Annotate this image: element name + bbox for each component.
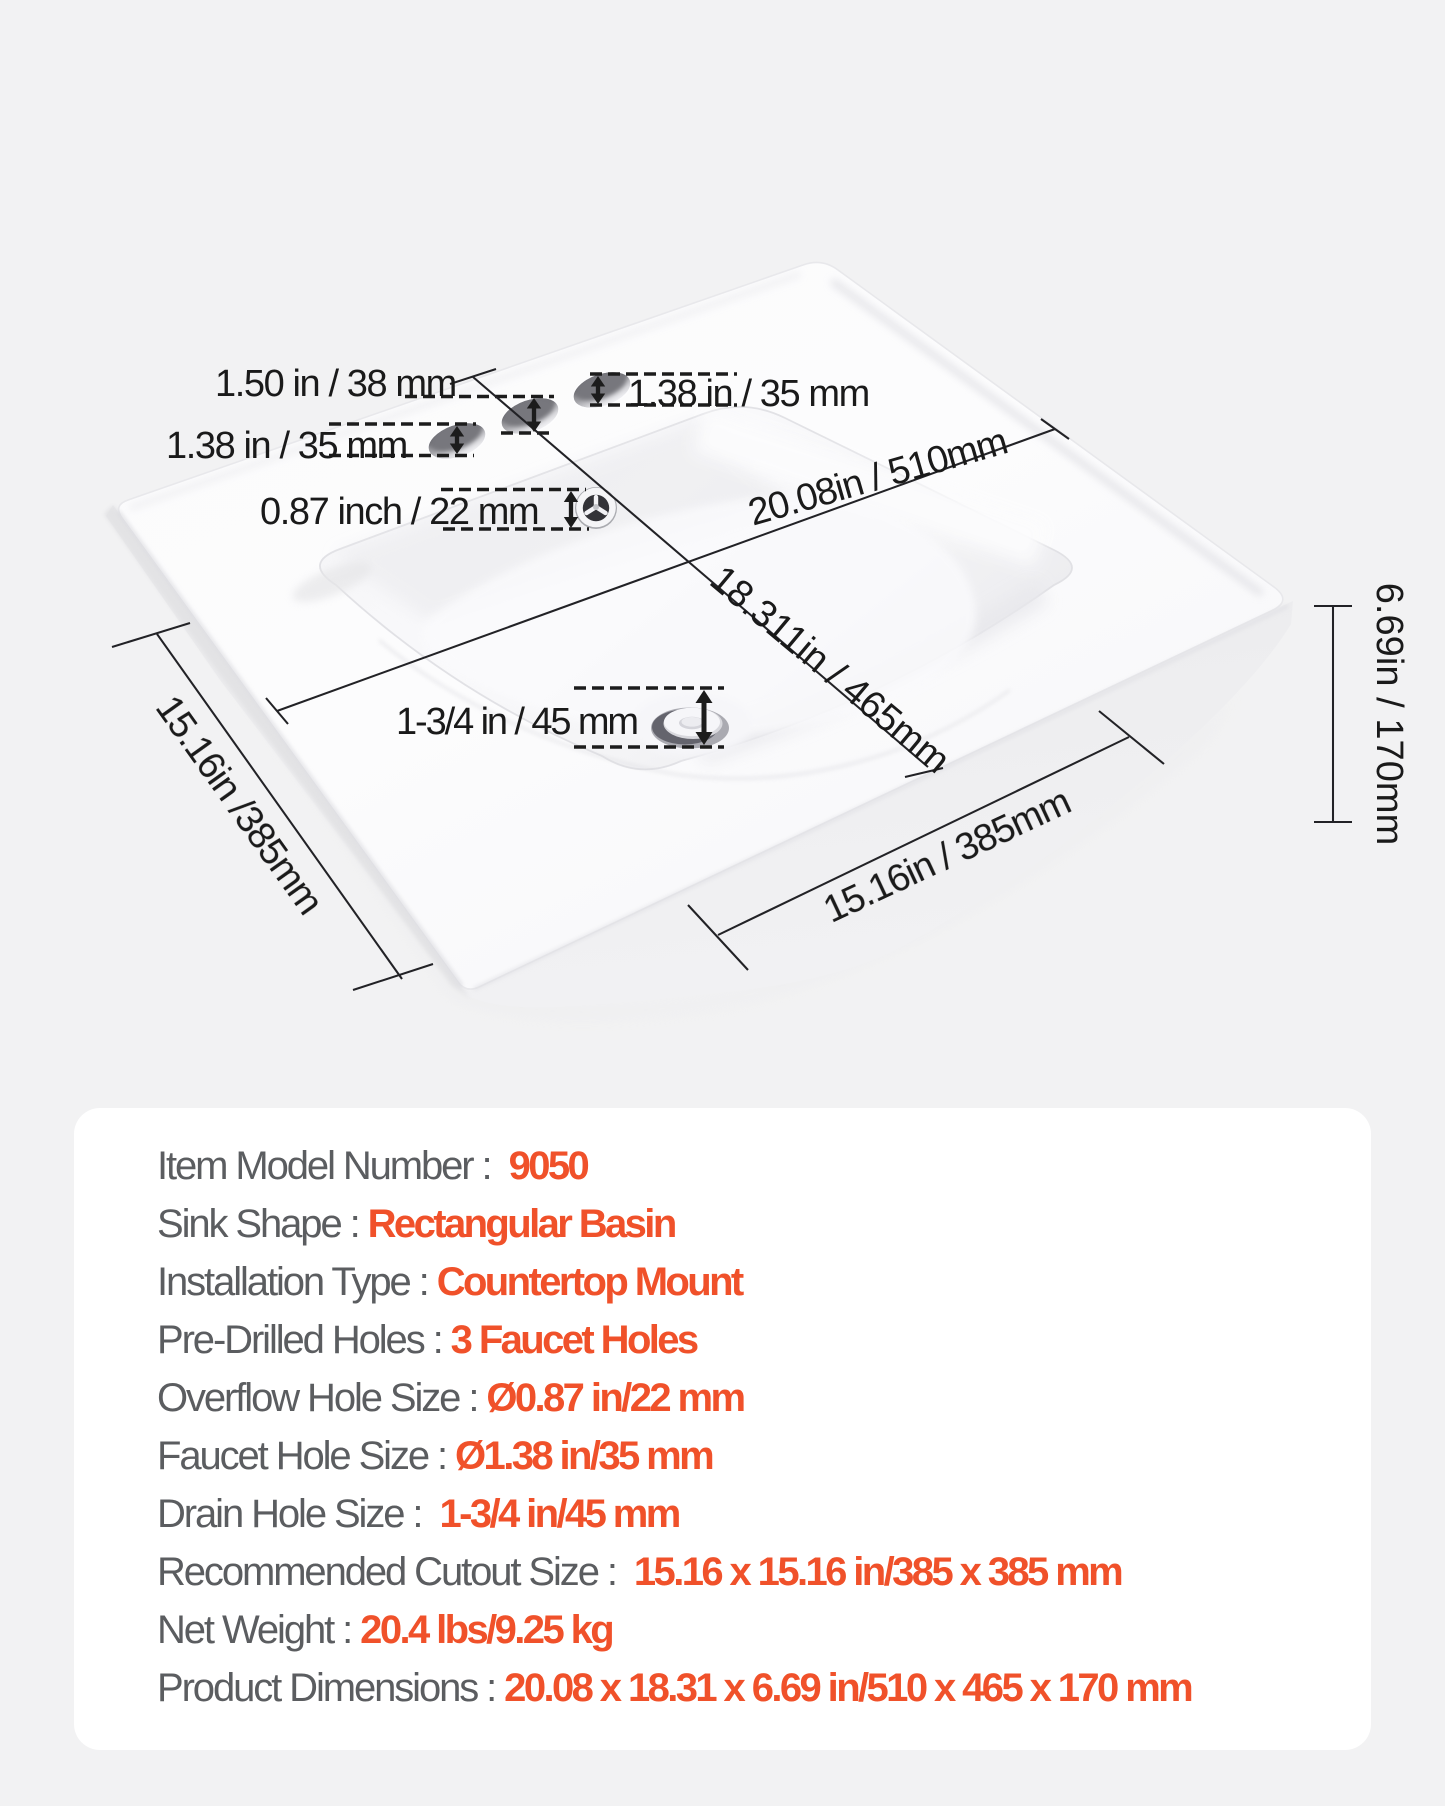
svg-text:0.87 inch / 22 mm: 0.87 inch / 22 mm xyxy=(260,491,538,533)
svg-text:1.38 in / 35 mm: 1.38 in / 35 mm xyxy=(166,425,407,467)
svg-text:1.38 in / 35 mm: 1.38 in / 35 mm xyxy=(628,373,869,415)
svg-text:6.69in / 170mm: 6.69in / 170mm xyxy=(1368,583,1410,846)
svg-text:1-3/4 in / 45 mm: 1-3/4 in / 45 mm xyxy=(396,701,637,743)
svg-text:1.50 in / 38 mm: 1.50 in / 38 mm xyxy=(215,363,456,405)
